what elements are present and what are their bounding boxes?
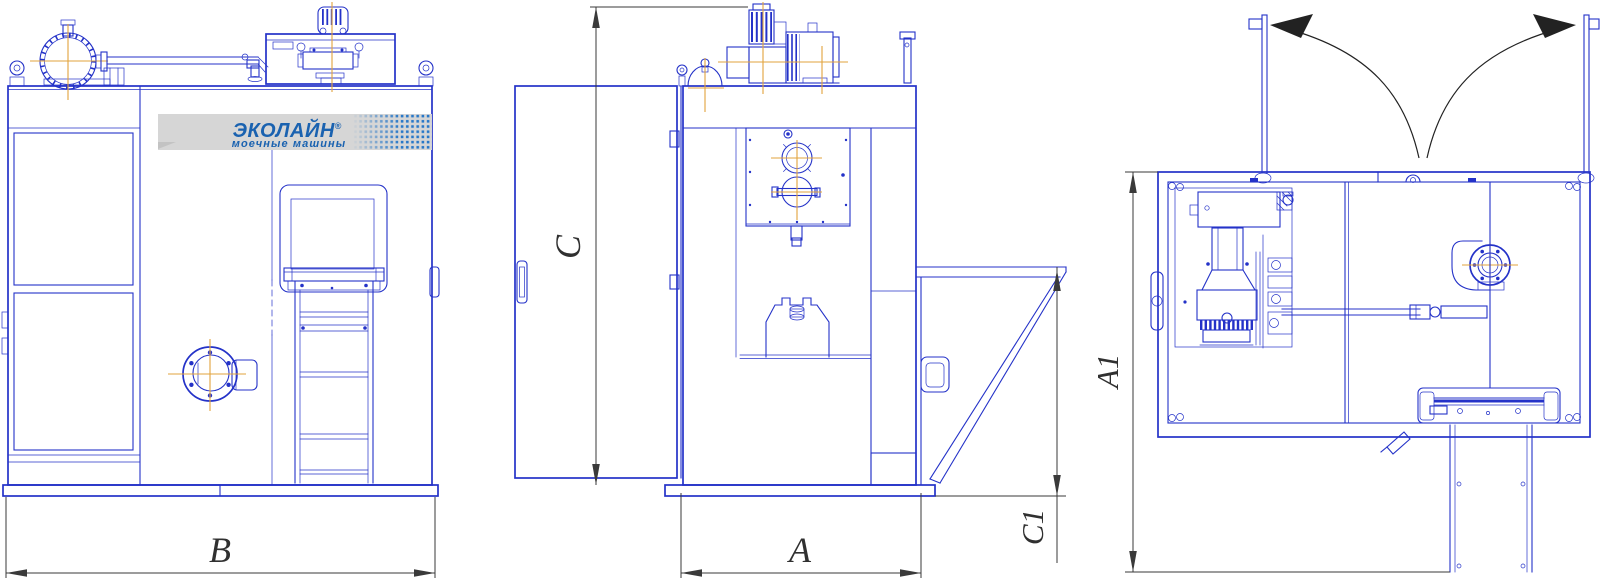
drain-lever [1381,432,1410,454]
dim-label-B: B [209,530,231,570]
dim-label-A1: A1 [1090,354,1125,390]
dimension-C: C [548,7,748,485]
top-tank [30,20,110,100]
technical-drawing: ЭКОЛАЙН® моечные машины [0,0,1600,583]
loading-ladder [284,268,384,483]
dimension-A: A [681,493,921,578]
dimension-A1: A1 [1090,172,1450,572]
dim-label-C1: C1 [1015,509,1050,545]
dim-label-A: A [787,530,812,570]
dim-label-C: C [548,234,588,259]
front-view: ЭКОЛАЙН® моечные машины [2,2,439,578]
detergent-tank [766,298,829,357]
eyebolt-right [419,61,433,86]
motor-assembly [677,2,915,112]
discharge-chute [916,267,1066,485]
drive-unit [242,2,395,92]
brand-logo: ЭКОЛАЙН® моечные машины [158,114,432,150]
loading-window [280,185,387,292]
eyebolt-left [10,61,24,86]
swing-doors [1249,15,1599,183]
dimension-B: B [6,497,435,578]
hinge-pad [1277,192,1292,210]
dimension-C1: C1 [935,267,1066,563]
corner-feet [1169,183,1581,422]
work-platform [1418,388,1560,423]
top-view: A1 [1090,14,1599,572]
side-view: C A C1 [515,2,1066,578]
spray-pipe [1282,305,1487,319]
side-door [515,86,681,478]
pump-drive-group [1175,188,1293,348]
inspection-flange [168,339,257,411]
logo-tagline: моечные машины [232,138,347,150]
door-swing-arrows [1270,14,1576,158]
valve-panel [746,128,850,246]
blower-fan [1452,241,1518,290]
chute-legs [1450,425,1532,572]
drawing-canvas: ЭКОЛАЙН® моечные машины [0,0,1600,583]
